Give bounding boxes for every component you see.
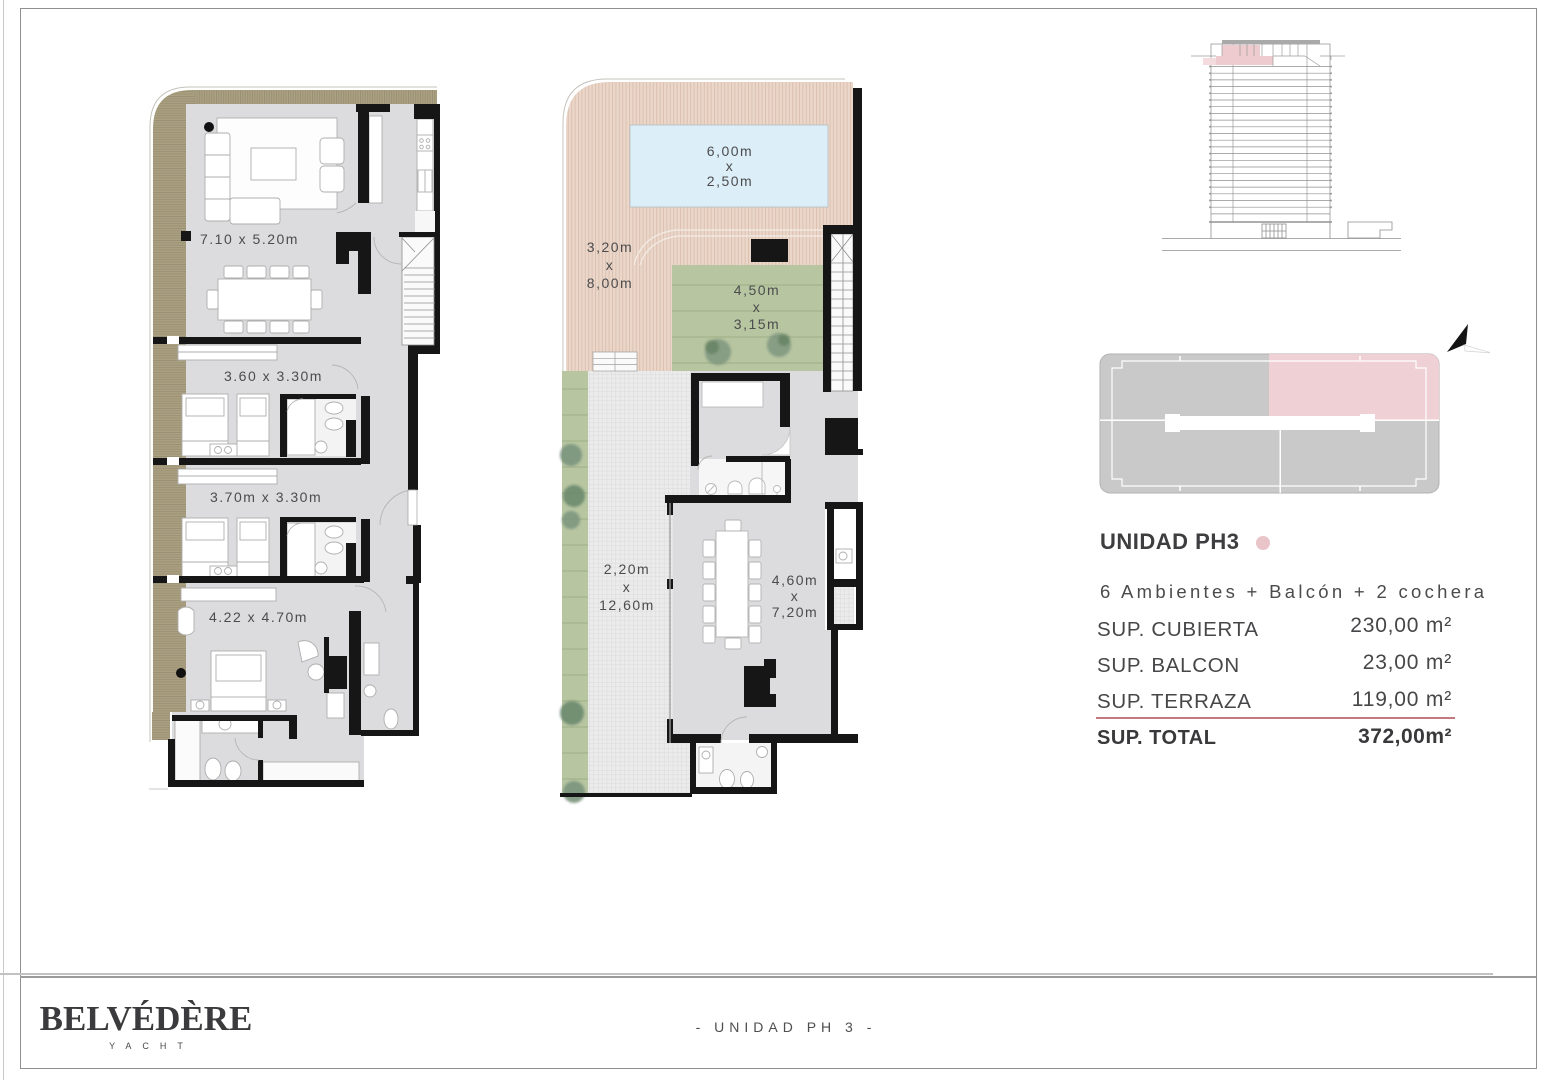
svg-text:3.60 x 3.30m: 3.60 x 3.30m [224,368,323,384]
svg-text:2,20m: 2,20m [604,561,650,577]
svg-text:6,00m: 6,00m [707,143,753,159]
svg-text:3,20m: 3,20m [587,239,633,255]
svg-text:3,15m: 3,15m [734,316,780,332]
svg-text:4,50m: 4,50m [734,282,780,298]
svg-text:3.70m x 3.30m: 3.70m x 3.30m [210,489,322,505]
svg-text:x: x [623,579,632,595]
svg-text:12,60m: 12,60m [599,597,655,613]
svg-text:x: x [606,257,615,273]
svg-text:x: x [753,299,762,315]
svg-text:x: x [791,588,800,604]
svg-text:x: x [726,158,735,174]
svg-text:4,60m: 4,60m [772,572,818,588]
svg-text:7,20m: 7,20m [772,604,818,620]
svg-text:7.10 x 5.20m: 7.10 x 5.20m [200,231,299,247]
svg-text:2,50m: 2,50m [707,173,753,189]
svg-text:4.22 x 4.70m: 4.22 x 4.70m [209,609,308,625]
svg-text:8,00m: 8,00m [587,275,633,291]
